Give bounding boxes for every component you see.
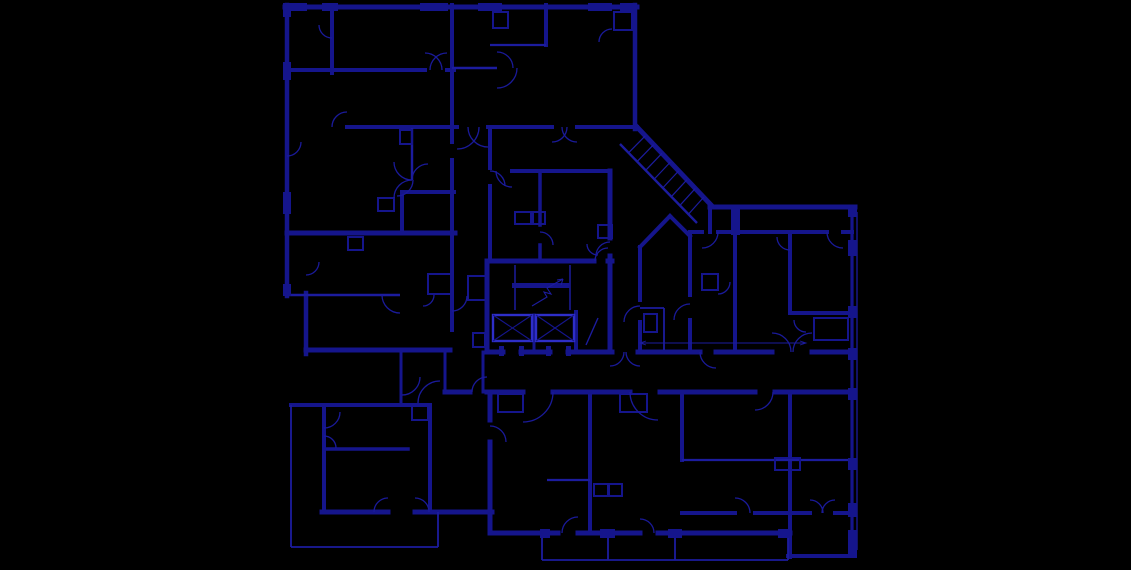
- stair-hatch-layer: [629, 136, 704, 214]
- wall-pillar: [848, 240, 857, 256]
- door-swing-arc: [772, 333, 791, 352]
- wall-pillar: [322, 3, 338, 11]
- thin-walls-layer: [287, 45, 857, 560]
- wall-pillar: [778, 529, 790, 538]
- door-swing-arc: [599, 29, 612, 42]
- door-swing-arc: [735, 498, 750, 513]
- wall-pillar: [848, 348, 857, 360]
- wall-pillar: [519, 346, 524, 356]
- door-swing-arc: [552, 127, 567, 142]
- closet-box: [348, 237, 363, 250]
- wall-pillar: [499, 346, 504, 356]
- wall-segment: [640, 216, 670, 247]
- floor-plan: [0, 0, 1131, 570]
- closet-box: [473, 333, 485, 347]
- door-swing-arc: [452, 296, 467, 311]
- closet-box: [378, 198, 394, 211]
- stair-hatch-tick: [629, 136, 646, 153]
- wall-segment: [670, 216, 690, 236]
- stair-hatch-tick: [663, 171, 679, 188]
- closet-box: [428, 274, 452, 294]
- door-swing-arc: [412, 164, 428, 180]
- stair-hatch-tick: [654, 162, 670, 179]
- door-swing-arc: [674, 304, 690, 320]
- door-swing-arc: [497, 68, 517, 88]
- thin-wall-segment: [620, 144, 697, 223]
- wall-pillar: [283, 3, 291, 17]
- door-swing-arc: [827, 232, 843, 248]
- stair-hatch-tick: [671, 180, 687, 197]
- door-swing-arc: [423, 295, 434, 306]
- door-swing-arc: [702, 232, 718, 248]
- door-swing-arc: [306, 262, 319, 275]
- closet-box: [620, 394, 647, 412]
- closet-box: [412, 406, 428, 420]
- door-swing-arc: [497, 52, 513, 68]
- door-swing-arc: [562, 127, 577, 142]
- closets-layer: [348, 12, 848, 496]
- closet-box: [498, 394, 523, 412]
- wall-pillar: [283, 192, 291, 214]
- closet-box: [609, 484, 622, 496]
- door-swing-arc: [540, 232, 553, 245]
- wall-pillar: [848, 205, 857, 217]
- wall-pillar: [283, 62, 291, 80]
- closet-box: [493, 12, 508, 28]
- door-swing-arc: [324, 412, 340, 428]
- wall-pillar: [668, 529, 682, 538]
- closet-box: [515, 212, 531, 224]
- closet-box: [644, 314, 657, 332]
- door-swing-arc: [794, 320, 806, 332]
- stair-hatch-tick: [680, 188, 695, 205]
- wall-pillar: [848, 503, 857, 517]
- door-swing-arc: [793, 333, 812, 352]
- thin-wall-segment: [586, 318, 598, 345]
- door-swing-arc: [425, 53, 442, 70]
- door-swing-arc: [394, 162, 412, 180]
- closet-box: [400, 130, 412, 144]
- wall-pillar: [848, 306, 857, 318]
- wall-pillar: [540, 529, 550, 538]
- floor-plan-drawing: [0, 0, 1131, 570]
- stair-hatch-tick: [646, 153, 662, 170]
- doors-layer: [287, 25, 843, 533]
- door-swing-arc: [418, 381, 440, 403]
- wall-pillar: [478, 3, 502, 11]
- wall-pillar: [566, 346, 571, 356]
- closet-box: [814, 318, 848, 340]
- door-swing-arc: [718, 282, 730, 294]
- door-swing-arc: [402, 377, 420, 395]
- wall-pillar: [600, 529, 615, 538]
- closet-box: [594, 484, 608, 496]
- door-swing-arc: [630, 392, 658, 420]
- stair-hatch-tick: [688, 197, 703, 214]
- door-swing-arc: [382, 295, 400, 313]
- door-swing-arc: [430, 53, 447, 70]
- closet-box: [702, 274, 718, 290]
- wall-pillar: [588, 3, 612, 11]
- wall-pillar: [620, 3, 637, 11]
- wall-pillar: [283, 284, 291, 296]
- wall-pillar: [848, 458, 857, 470]
- wall-pillar: [848, 530, 857, 558]
- door-swing-arc: [624, 306, 640, 322]
- wall-pillar: [420, 3, 448, 11]
- door-swing-arc: [523, 392, 553, 422]
- wall-pillar: [848, 388, 857, 400]
- wall-pillar: [546, 346, 551, 356]
- door-swing-arc: [755, 392, 773, 410]
- closet-box: [614, 12, 632, 30]
- wall-segment: [637, 127, 712, 206]
- wall-pillar: [731, 205, 740, 235]
- stair-hatch-tick: [637, 145, 654, 162]
- door-swing-arc: [332, 112, 347, 127]
